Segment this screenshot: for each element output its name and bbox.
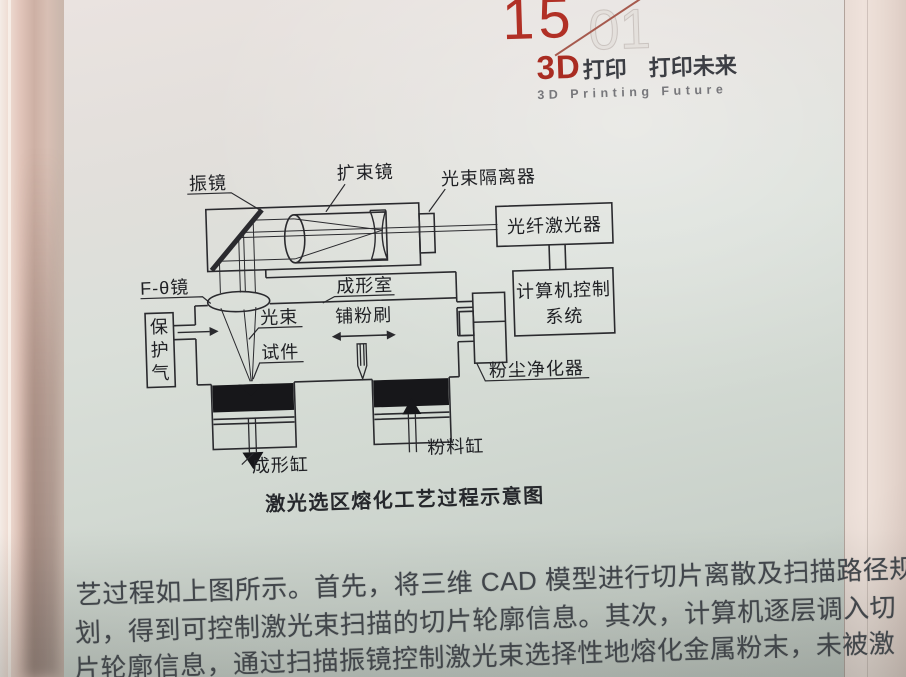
fiber-laser-label: 光纤激光器: [507, 214, 603, 237]
brand-logo: 3D 打印 打印未来 3D Printing Future: [536, 43, 738, 102]
svg-text:气: 气: [151, 363, 171, 384]
forming-chamber-outline: [194, 264, 459, 385]
powder-brush-shape: [357, 344, 367, 379]
laser-computer-connector: [549, 244, 566, 269]
purifier-duct: [459, 311, 474, 335]
galvo-mirror: [210, 210, 264, 271]
slm-process-diagram: 光纤激光器 计算机控制 系统 保 护 气: [122, 144, 652, 492]
logo-3d-mark: 3D: [536, 48, 581, 87]
logo-slogan-cn: 打印未来: [648, 48, 737, 83]
beam-expander-label: 扩束镜: [336, 162, 394, 184]
brush-travel-arrow: [340, 335, 388, 337]
purifier-divider: [473, 321, 505, 322]
brush-arrow-right-head: [387, 330, 396, 339]
powder-piston-rod: [408, 414, 416, 452]
beam-label: 光束: [260, 307, 299, 328]
logo-print-text: 打印: [582, 51, 627, 84]
page-content: 01 15 3D 打印 打印未来 3D Printing Future: [0, 0, 906, 677]
brush-arrow-left-head: [332, 332, 341, 341]
galvo-label: 振镜: [189, 173, 228, 194]
gas-flow-arrow-head: [209, 327, 218, 336]
book-page-photo: 01 15 3D 打印 打印未来 3D Printing Future: [0, 0, 906, 677]
computer-control-label-line1: 计算机控制: [516, 279, 612, 302]
computer-control-label-line2: 系统: [545, 306, 584, 327]
powder-cylinder-label: 粉料缸: [427, 435, 485, 458]
gas-flow-arrow-shaft: [178, 332, 210, 333]
protective-gas-label: 保 护 气: [150, 317, 171, 384]
forming-chamber-label: 成形室: [336, 275, 394, 297]
svg-text:保: 保: [150, 317, 170, 338]
powder-brush-label: 铺粉刷: [335, 305, 393, 327]
beam-isolator-label: 光束隔离器: [441, 166, 537, 189]
expander-convex-lens: [284, 215, 305, 264]
svg-text:护: 护: [150, 340, 170, 361]
beam-isolator-block: [419, 213, 435, 252]
dust-purifier-label: 粉尘净化器: [489, 358, 585, 381]
specimen-label: 试件: [261, 342, 300, 363]
forming-cylinder-label: 成形缸: [252, 454, 310, 477]
dust-purifier-box: [473, 292, 507, 363]
expander-concave-lens: [370, 210, 388, 259]
f-theta-label: F-θ镜: [140, 277, 190, 299]
